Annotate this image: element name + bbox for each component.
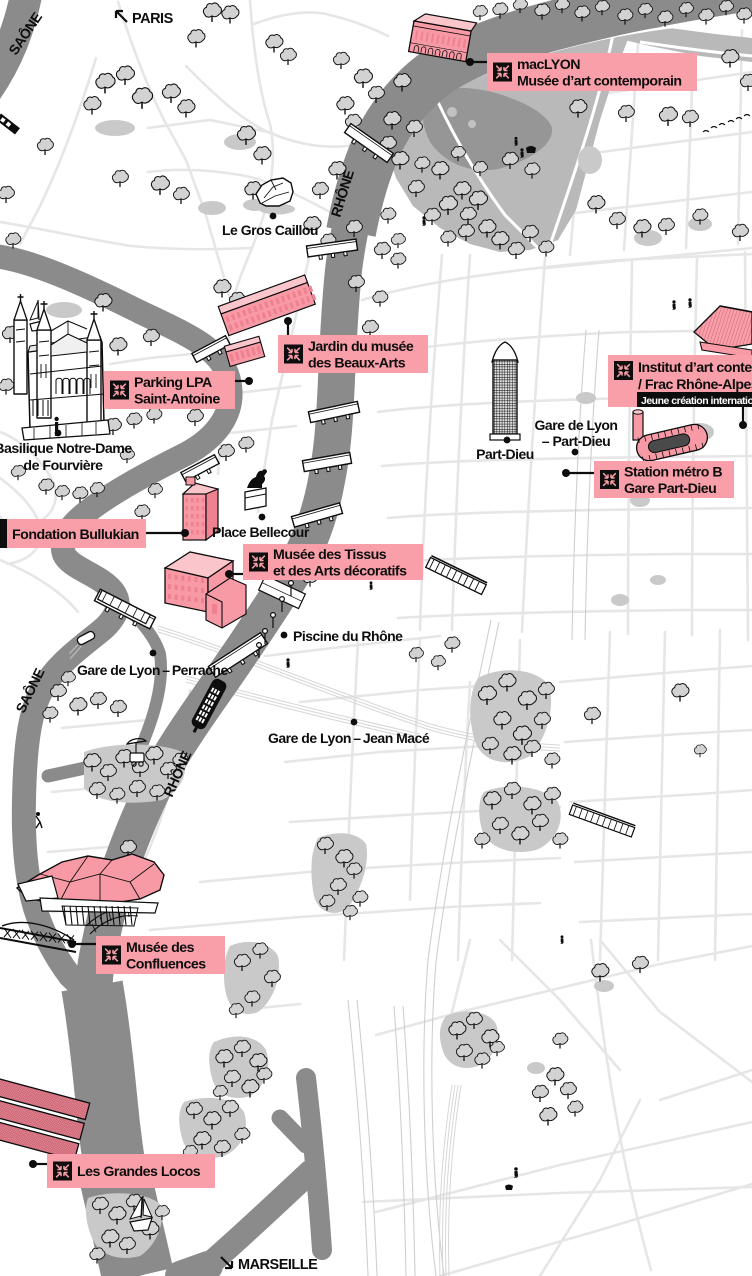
svg-text:et des Arts décoratifs: et des Arts décoratifs	[273, 563, 407, 579]
svg-text:Gare de Lyon – Jean Macé: Gare de Lyon – Jean Macé	[268, 730, 430, 746]
svg-text:Fondation Bullukian: Fondation Bullukian	[12, 527, 139, 543]
svg-text:Musée d’art contemporain: Musée d’art contemporain	[517, 73, 682, 89]
svg-text:/ Frac Rhône-Alpes: / Frac Rhône-Alpes	[638, 377, 752, 393]
svg-text:MARSEILLE: MARSEILLE	[238, 1257, 318, 1273]
svg-text:PARIS: PARIS	[132, 11, 174, 27]
svg-text:Musée des: Musée des	[126, 940, 195, 956]
svg-text:Basilique Notre-Dame: Basilique Notre-Dame	[0, 441, 132, 457]
svg-text:Les Grandes Locos: Les Grandes Locos	[77, 1164, 201, 1180]
svg-text:macLYON: macLYON	[517, 57, 580, 73]
svg-text:Institut d’art contemporain: Institut d’art contemporain	[638, 360, 752, 376]
svg-text:Jardin du musée: Jardin du musée	[308, 339, 414, 355]
svg-text:Part-Dieu: Part-Dieu	[476, 446, 534, 462]
svg-text:des Beaux-Arts: des Beaux-Arts	[308, 355, 406, 371]
svg-text:Station métro B: Station métro B	[624, 464, 722, 480]
svg-text:Jeune création internationale: Jeune création internationale	[641, 395, 752, 407]
svg-text:Le Gros Caillou: Le Gros Caillou	[222, 222, 318, 238]
svg-text:Place Bellecour: Place Bellecour	[212, 524, 310, 540]
svg-text:Gare Part-Dieu: Gare Part-Dieu	[624, 481, 716, 497]
svg-text:Parking LPA: Parking LPA	[134, 375, 212, 391]
svg-text:Piscine du Rhône: Piscine du Rhône	[293, 628, 403, 644]
svg-text:Saint-Antoine: Saint-Antoine	[134, 391, 220, 407]
svg-text:Musée des Tissus: Musée des Tissus	[273, 547, 387, 563]
svg-text:Gare de Lyon: Gare de Lyon	[535, 417, 618, 433]
svg-text:– Part-Dieu: – Part-Dieu	[542, 433, 610, 449]
svg-text:Gare de Lyon – Perrache: Gare de Lyon – Perrache	[77, 662, 228, 678]
svg-text:de Fourvière: de Fourvière	[23, 458, 103, 474]
svg-text:Confluences: Confluences	[126, 956, 206, 972]
